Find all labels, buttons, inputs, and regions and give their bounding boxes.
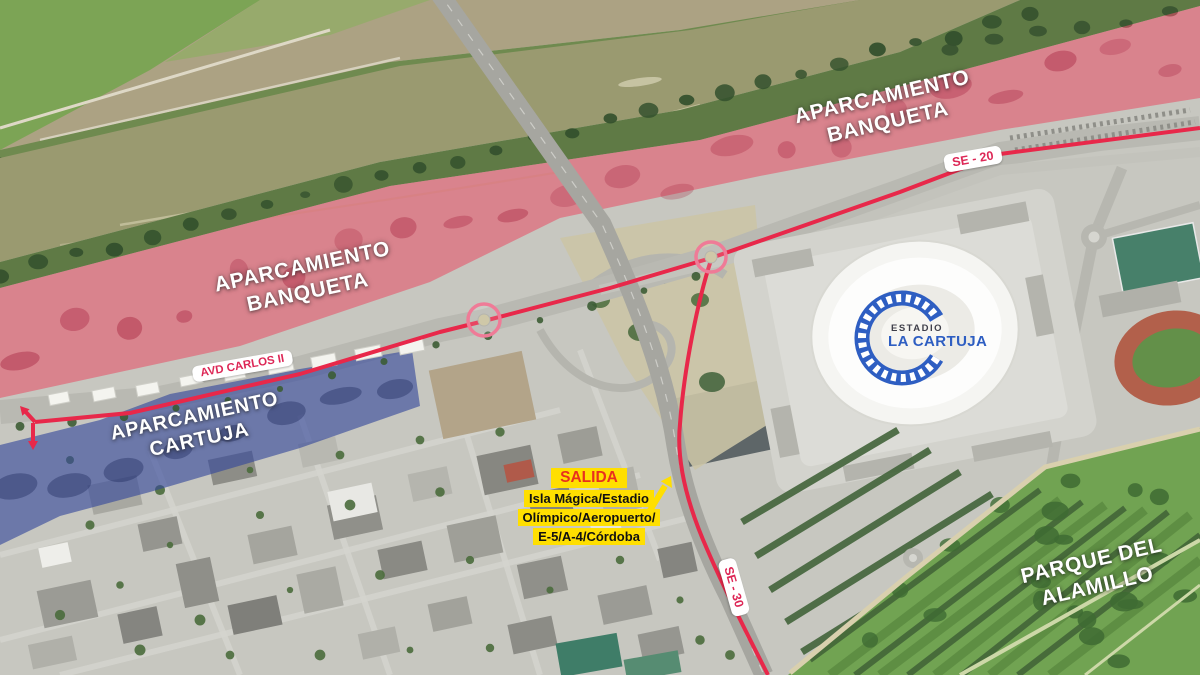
tree bbox=[69, 248, 83, 257]
tree bbox=[336, 451, 345, 460]
tree bbox=[985, 34, 1004, 45]
tree bbox=[639, 103, 659, 118]
tree bbox=[546, 586, 553, 593]
map-canvas: APARCAMIENTO BANQUETA APARCAMIENTO BANQU… bbox=[0, 0, 1200, 675]
tree bbox=[725, 650, 735, 660]
tree bbox=[277, 386, 283, 392]
tree bbox=[407, 647, 414, 654]
tree bbox=[334, 176, 353, 193]
tree bbox=[486, 644, 494, 652]
tree bbox=[909, 38, 922, 46]
tree bbox=[695, 635, 705, 645]
tree bbox=[106, 243, 123, 257]
tree bbox=[1074, 21, 1090, 34]
tree bbox=[1029, 26, 1047, 37]
tree bbox=[167, 542, 173, 548]
tree bbox=[604, 113, 618, 123]
tree bbox=[1021, 7, 1038, 21]
tree bbox=[587, 301, 597, 311]
tree bbox=[1078, 611, 1097, 629]
tree bbox=[413, 162, 427, 173]
tree bbox=[466, 556, 474, 564]
tree bbox=[135, 645, 146, 656]
tree bbox=[55, 610, 65, 620]
tree bbox=[1031, 575, 1051, 588]
tree bbox=[982, 15, 1002, 29]
building bbox=[296, 566, 343, 613]
tree bbox=[616, 556, 624, 564]
tree bbox=[699, 372, 725, 392]
tree bbox=[416, 436, 425, 445]
tree bbox=[945, 31, 963, 46]
tree bbox=[144, 230, 161, 245]
tree bbox=[565, 128, 579, 138]
tree bbox=[221, 208, 237, 220]
tree bbox=[1128, 483, 1143, 497]
tree bbox=[830, 58, 849, 71]
tree bbox=[869, 43, 886, 57]
tree bbox=[380, 358, 387, 365]
tree bbox=[300, 191, 310, 198]
tree bbox=[715, 84, 735, 101]
roundabout-island bbox=[1089, 232, 1100, 243]
roundabout-island bbox=[705, 251, 717, 263]
tree bbox=[287, 587, 293, 593]
tree bbox=[183, 218, 199, 231]
tree bbox=[435, 487, 445, 497]
tree bbox=[1150, 489, 1169, 506]
tree bbox=[225, 397, 232, 404]
tree bbox=[495, 427, 504, 436]
tree bbox=[345, 500, 356, 511]
tree bbox=[432, 341, 439, 348]
tree bbox=[16, 422, 25, 431]
tree bbox=[1042, 502, 1069, 521]
tree bbox=[923, 608, 946, 622]
tree bbox=[116, 581, 124, 589]
tree bbox=[641, 287, 648, 294]
tree bbox=[85, 520, 94, 529]
roundabout-island bbox=[478, 314, 490, 326]
tree bbox=[1110, 592, 1138, 612]
tree bbox=[172, 405, 179, 412]
tree bbox=[676, 596, 683, 603]
tree bbox=[1033, 591, 1047, 611]
tree bbox=[226, 651, 235, 660]
tree bbox=[374, 170, 388, 181]
tree bbox=[795, 70, 807, 79]
tree bbox=[261, 200, 274, 209]
tree bbox=[375, 570, 385, 580]
tree bbox=[1034, 526, 1059, 545]
tree bbox=[328, 371, 336, 379]
tree bbox=[247, 467, 254, 474]
tree bbox=[692, 272, 701, 281]
tree bbox=[942, 44, 959, 56]
tree bbox=[450, 156, 465, 169]
tree bbox=[28, 254, 48, 269]
parking-roundabout-island bbox=[909, 554, 917, 562]
tree bbox=[489, 146, 502, 156]
tree bbox=[1079, 627, 1104, 645]
tree bbox=[862, 632, 878, 647]
tree bbox=[537, 317, 543, 323]
satellite-map-art bbox=[0, 0, 1200, 675]
tree bbox=[1061, 474, 1081, 489]
tree bbox=[526, 516, 535, 525]
tree bbox=[195, 615, 206, 626]
tree bbox=[754, 74, 771, 89]
tree bbox=[256, 511, 264, 519]
tree bbox=[605, 495, 614, 504]
tree bbox=[679, 95, 694, 106]
tree bbox=[315, 650, 326, 661]
